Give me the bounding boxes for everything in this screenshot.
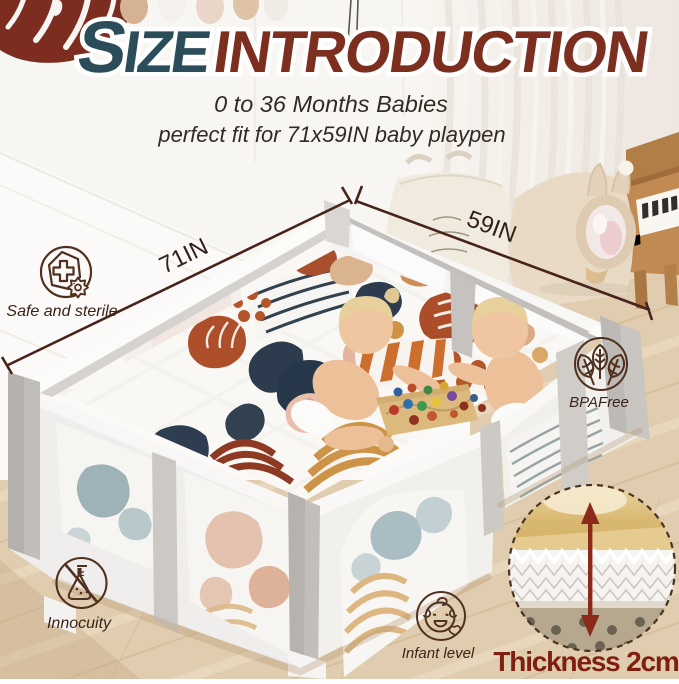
svg-text:Infant level: Infant level — [402, 645, 475, 662]
svg-text:Safe and sterile: Safe and sterile — [6, 303, 117, 320]
svg-text:0 to 36 Months Babies: 0 to 36 Months Babies — [214, 91, 448, 117]
svg-text:BPAFree: BPAFree — [569, 394, 629, 411]
svg-text:Thickness 2cm: Thickness 2cm — [493, 646, 678, 677]
svg-text:SIZEINTRODUCTION: SIZEINTRODUCTION — [73, 6, 654, 88]
svg-text:perfect fit for 71x59IN baby p: perfect fit for 71x59IN baby playpen — [157, 122, 505, 147]
svg-text:Innocuity: Innocuity — [47, 615, 112, 632]
